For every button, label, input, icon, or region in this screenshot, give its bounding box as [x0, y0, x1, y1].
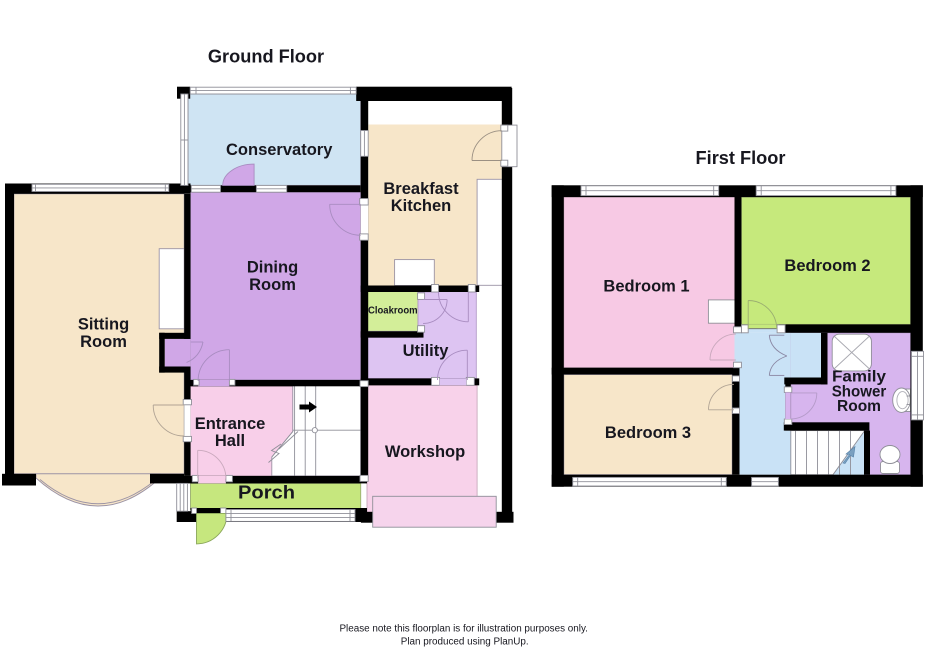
svg-text:Kitchen: Kitchen [391, 197, 452, 215]
svg-text:Dining: Dining [247, 258, 298, 276]
svg-text:Entrance: Entrance [195, 415, 266, 433]
svg-text:Workshop: Workshop [385, 443, 465, 461]
svg-text:Sitting: Sitting [78, 316, 129, 334]
svg-text:Plan produced using PlanUp.: Plan produced using PlanUp. [401, 637, 529, 648]
svg-text:Bedroom 1: Bedroom 1 [603, 278, 689, 296]
svg-text:Please note this floorplan is: Please note this floorplan is for illust… [339, 624, 587, 635]
svg-text:Porch: Porch [238, 483, 295, 503]
svg-text:Bedroom 2: Bedroom 2 [784, 257, 870, 275]
svg-text:Conservatory: Conservatory [226, 141, 333, 159]
svg-text:Ground Floor: Ground Floor [208, 47, 324, 67]
svg-text:Room: Room [80, 333, 127, 351]
svg-text:Hall: Hall [215, 432, 245, 450]
svg-text:Cloakroom: Cloakroom [368, 306, 418, 317]
svg-text:First Floor: First Floor [696, 148, 786, 168]
svg-text:Utility: Utility [403, 342, 450, 360]
svg-text:Room: Room [837, 398, 881, 415]
svg-text:Bedroom 3: Bedroom 3 [605, 424, 691, 442]
svg-text:Breakfast: Breakfast [383, 180, 459, 198]
svg-text:Room: Room [249, 276, 296, 294]
